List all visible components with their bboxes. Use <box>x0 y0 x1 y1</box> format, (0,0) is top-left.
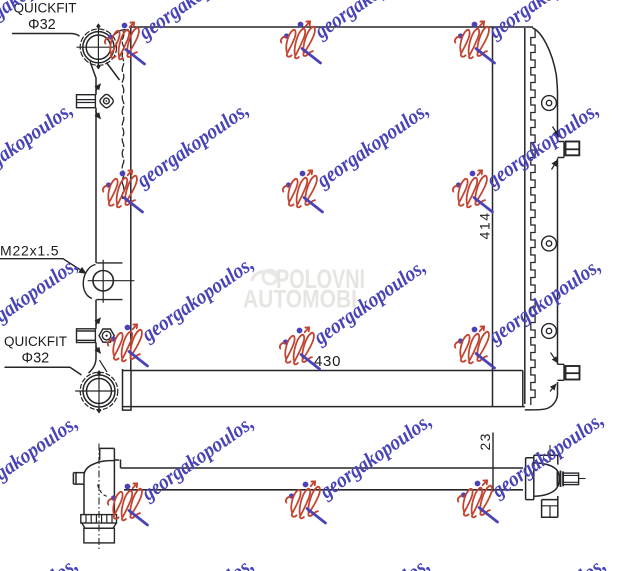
svg-text:23: 23 <box>477 432 493 450</box>
svg-text:M22x1.5: M22x1.5 <box>0 243 59 259</box>
svg-text:414: 414 <box>477 211 493 239</box>
svg-text:QUICKFIT: QUICKFIT <box>4 334 67 349</box>
svg-text:Φ32: Φ32 <box>28 17 56 33</box>
svg-text:Φ32: Φ32 <box>22 351 50 367</box>
